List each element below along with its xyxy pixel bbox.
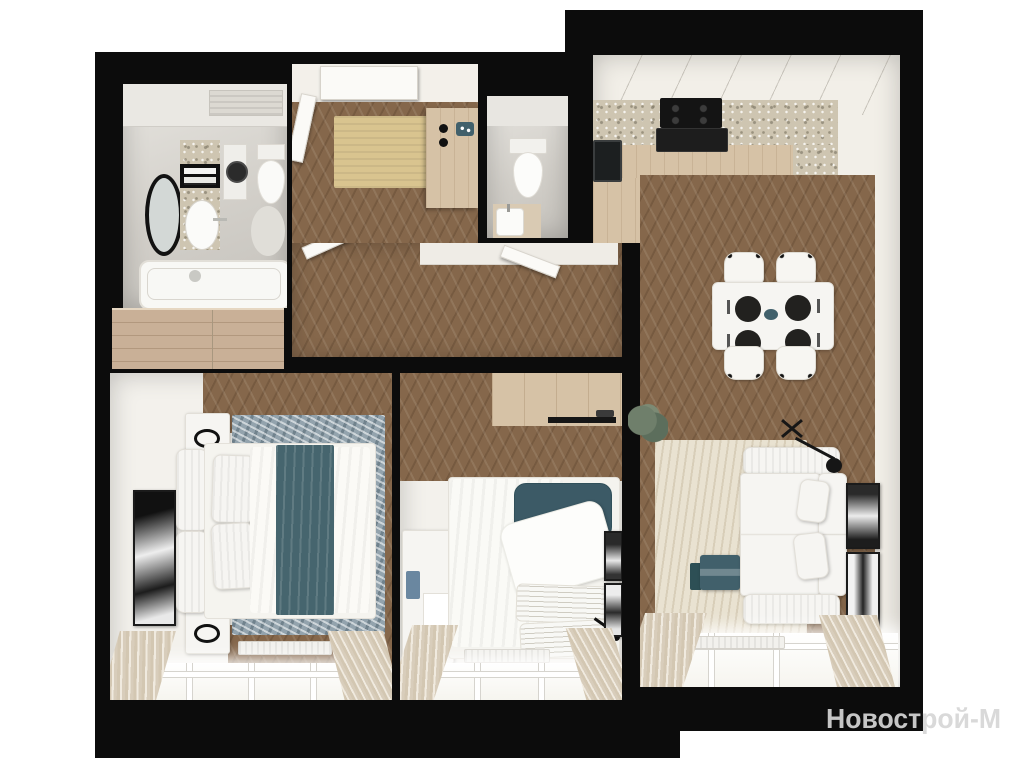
window-mullion [248, 663, 255, 700]
floor-lamp-head [826, 458, 842, 473]
wardrobe-seam [212, 310, 213, 369]
console-tray [456, 122, 474, 136]
window-mullion [310, 663, 317, 700]
towel-striped [184, 177, 216, 185]
wall-corridor-living [622, 243, 640, 700]
kitchen-sink [593, 140, 622, 182]
bl-teal-throw [276, 445, 334, 615]
placemat-1 [735, 296, 761, 322]
hall-console [426, 108, 478, 208]
bathroom-toilet-tank [257, 144, 285, 160]
cutlery-4 [817, 333, 820, 347]
cooker-hood [656, 128, 728, 152]
bathtub-drain [189, 270, 201, 282]
desk-notebook [406, 571, 420, 599]
hall-wardrobe [112, 308, 284, 369]
bedroom-left [110, 373, 392, 700]
bm-radiator [464, 649, 550, 663]
sofa-armrest-top [743, 447, 840, 475]
dining-chair-3 [724, 346, 764, 380]
washer-door [226, 161, 248, 183]
floorplan-canvas: Новострой-М [0, 0, 1018, 768]
placemat-2 [785, 295, 811, 321]
dining-chair-4 [776, 346, 816, 380]
corridor [292, 243, 622, 360]
console-knob-1 [439, 124, 448, 133]
bathtub [139, 260, 287, 308]
wardrobe-handle [596, 410, 614, 417]
plant [628, 402, 668, 448]
window-mullion [538, 663, 545, 700]
bathtub-inner [147, 268, 281, 300]
wall-corridor-bedrooms [292, 357, 640, 373]
wc [487, 96, 568, 238]
bl-radiator [238, 641, 332, 655]
wc-back-wall [487, 96, 568, 126]
coffee-table [700, 555, 740, 590]
dining-chair-2 [776, 252, 816, 286]
wardrobe-rail [548, 417, 616, 423]
bm-art-frame-1 [604, 531, 622, 581]
bl-pillow-2 [210, 522, 255, 590]
bathroom [123, 84, 287, 308]
entry-hall [292, 64, 478, 243]
oval-mirror [145, 174, 183, 256]
laundry-basket [251, 206, 285, 256]
towel-rack [180, 164, 220, 188]
ceiling-vent [209, 90, 283, 116]
sofa-pillow-1 [795, 478, 831, 524]
sofa-pillow-2 [792, 531, 829, 581]
towel-white [184, 168, 216, 174]
wc-faucet [507, 204, 510, 212]
vanity-faucet [213, 218, 227, 221]
living-radiator [693, 636, 785, 649]
console-knob-2 [439, 138, 448, 147]
entrance-door [320, 66, 418, 100]
cutlery-1 [727, 300, 730, 314]
wc-toilet-bowl [513, 152, 543, 198]
washing-machine [223, 144, 247, 200]
cutlery-2 [817, 299, 820, 313]
bathroom-toilet-bowl [257, 160, 285, 204]
vanity-basin [185, 200, 219, 250]
table-centerpiece [764, 309, 778, 320]
cooktop [660, 98, 722, 128]
bl-pillow-1 [211, 454, 255, 523]
doormat [334, 116, 428, 188]
bm-wardrobe [492, 373, 622, 426]
bl-art-frame [133, 490, 176, 626]
art-frame-living-1 [846, 483, 880, 549]
nightstand-handle [194, 624, 220, 643]
window-mullion [186, 663, 193, 700]
window-mullion [474, 663, 481, 700]
bedroom-middle [400, 373, 622, 700]
dining-chair-1 [724, 252, 764, 286]
watermark: Новострой-М [826, 703, 1001, 735]
wc-sink [496, 208, 524, 236]
